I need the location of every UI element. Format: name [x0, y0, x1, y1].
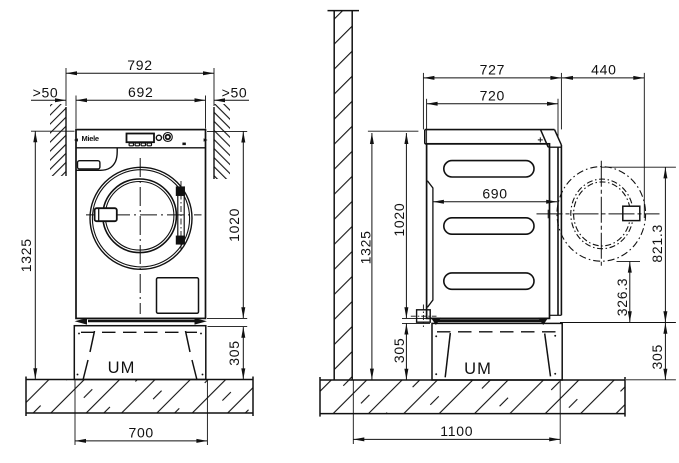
- svg-text:1020: 1020: [391, 203, 407, 237]
- svg-text:>50: >50: [33, 84, 59, 100]
- svg-text:692: 692: [128, 84, 153, 100]
- svg-text:1325: 1325: [358, 230, 374, 264]
- svg-text:305: 305: [391, 338, 407, 363]
- svg-text:1100: 1100: [440, 423, 473, 439]
- svg-text:690: 690: [482, 186, 507, 202]
- svg-text:305: 305: [649, 344, 665, 369]
- svg-text:1325: 1325: [18, 238, 34, 272]
- svg-text:720: 720: [480, 88, 505, 104]
- svg-text:821.3: 821.3: [649, 224, 665, 263]
- svg-text:440: 440: [591, 62, 616, 78]
- svg-text:792: 792: [127, 57, 152, 73]
- svg-text:1020: 1020: [226, 208, 242, 242]
- svg-text:UM: UM: [108, 359, 136, 377]
- svg-text:700: 700: [128, 425, 153, 441]
- svg-text:Miele: Miele: [82, 134, 99, 143]
- svg-text:305: 305: [226, 340, 242, 365]
- svg-text:>50: >50: [222, 84, 248, 100]
- svg-text:UM: UM: [464, 360, 492, 378]
- svg-text:326.3: 326.3: [614, 278, 630, 317]
- svg-text:727: 727: [480, 62, 505, 78]
